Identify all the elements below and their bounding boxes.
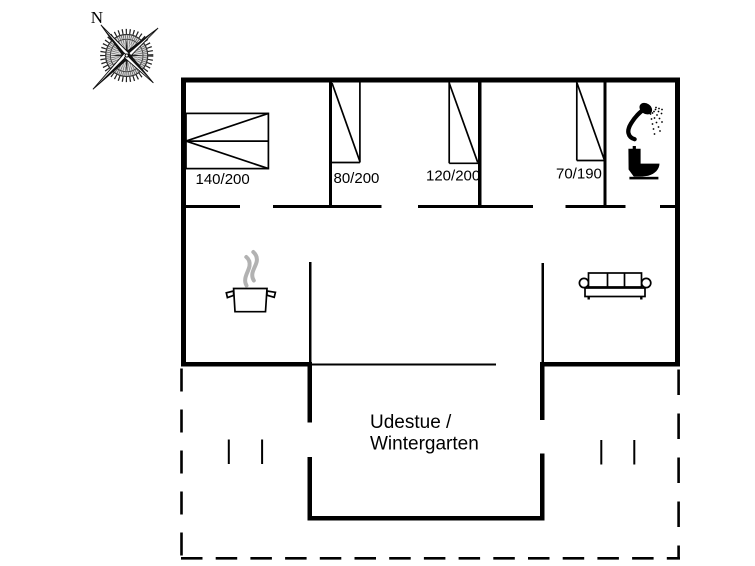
svg-text:140/200: 140/200 — [196, 171, 250, 188]
svg-text:Udestue /: Udestue / — [370, 412, 452, 433]
svg-text:Wintergarten: Wintergarten — [370, 434, 479, 455]
svg-text:70/190: 70/190 — [556, 166, 602, 183]
svg-text:N: N — [91, 8, 103, 27]
svg-text:80/200: 80/200 — [334, 170, 380, 187]
svg-text:120/200: 120/200 — [426, 168, 480, 185]
